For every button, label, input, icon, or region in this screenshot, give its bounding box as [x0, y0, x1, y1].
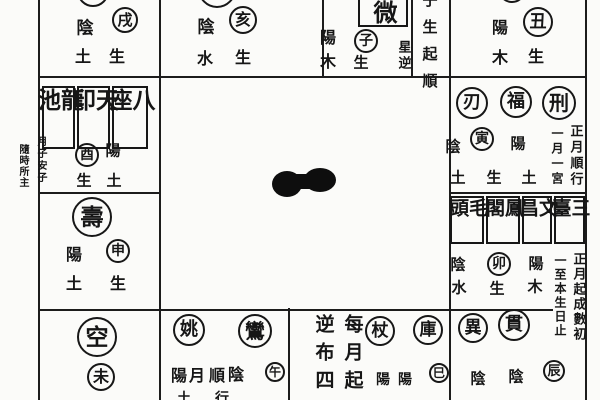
shou-star-circle: 壽 — [72, 197, 112, 237]
ink-blob — [269, 163, 337, 201]
yin-label: 陰 — [450, 258, 465, 273]
partial-cut-char: 土 — [177, 392, 191, 400]
branch-zi-circle: 子 — [354, 29, 378, 53]
element-water-label: 水 — [197, 51, 213, 67]
branch-yin-circle-char: 寅 — [475, 132, 489, 146]
branch-chen-circle: 辰 — [543, 360, 565, 382]
fu-star-circle: 福 — [500, 86, 532, 118]
grid-line — [411, 0, 413, 78]
partial-cut-char: 行 — [215, 392, 229, 400]
yi-star-circle-char: 異 — [465, 320, 482, 337]
branch-zi-circle-char: 子 — [359, 34, 373, 48]
maotou-star-box: 毛頭 — [450, 196, 484, 244]
grid-line — [38, 0, 40, 400]
guan-star-circle-char: 貫 — [505, 316, 523, 334]
cut-star-circle — [198, 0, 236, 8]
yao-star-circle: 姚 — [173, 314, 205, 346]
yang-label: 陽 — [171, 368, 187, 384]
grid-line — [449, 192, 587, 194]
divination-chart-page: 陰戌土生陰亥水生微陽子木生星逆子生起順陽丑木生龍池天印八座月子安子隨時所主酉陽生… — [0, 0, 600, 400]
kong-star-circle: 空 — [77, 317, 117, 357]
xing-star-circle-char: 刑 — [549, 93, 569, 113]
sheng-label: 生 — [76, 174, 91, 189]
ku-star-circle: 庫 — [413, 315, 443, 345]
branch-wei-circle: 未 — [87, 363, 115, 391]
luan-star-circle-char: 鸞 — [245, 321, 265, 341]
bazuo-star-box-text: 八座 — [107, 88, 153, 147]
note-zi-sheng-qi-shun: 子生起順 — [422, 0, 437, 100]
ku-star-circle-char: 庫 — [420, 322, 437, 339]
fengge-star-box: 鳳閣 — [486, 196, 520, 244]
yang-label: 陽 — [510, 137, 525, 152]
yin-label: 陰 — [77, 21, 94, 38]
kong-star-circle-char: 空 — [86, 326, 109, 349]
branch-mao-circle: 卯 — [487, 252, 511, 276]
yin-label: 陰 — [508, 370, 523, 385]
note-star-reverse: 星逆 — [397, 40, 410, 72]
note-first-month-forward: 正月順行 — [569, 124, 582, 188]
branch-hai-circle: 亥 — [229, 6, 257, 34]
yin-label: 陰 — [198, 20, 215, 37]
element-earth-label: 土 — [75, 49, 91, 65]
element-wood-label: 木 — [527, 280, 542, 295]
zhang-star-circle-char: 杖 — [372, 323, 389, 340]
yi-star-circle: 異 — [458, 313, 488, 343]
branch-you-circle: 酉 — [75, 143, 99, 167]
sheng-label: 生 — [353, 56, 368, 71]
branch-mao-circle-char: 卯 — [492, 257, 506, 271]
sheng-label: 生 — [110, 276, 126, 292]
fu-star-circle-char: 福 — [507, 93, 525, 111]
grid-line — [288, 308, 290, 400]
element-earth-label: 土 — [66, 276, 82, 292]
sheng-label: 生 — [489, 282, 504, 297]
grid-line — [159, 0, 161, 400]
maotou-star-box-text: 毛頭 — [448, 198, 486, 242]
branch-wei-circle-char: 未 — [93, 369, 109, 385]
santai-star-box: 三臺 — [554, 196, 585, 244]
grid-line — [38, 76, 587, 78]
branch-wu-circle: 午 — [265, 362, 285, 382]
branch-wu-circle-char: 午 — [269, 366, 281, 378]
yao-star-circle-char: 姚 — [180, 321, 198, 339]
yang-label: 陽 — [492, 20, 508, 36]
note-until-birthday: 一至本生日止 — [554, 254, 566, 338]
sheng-label: 生 — [528, 49, 544, 65]
ren-star-circle-char: 刃 — [463, 94, 481, 112]
yang-label: 陽 — [320, 30, 336, 46]
element-earth-label: 土 — [450, 171, 465, 186]
branch-shen-circle: 申 — [106, 239, 130, 263]
yin-label: 陰 — [228, 367, 244, 383]
branch-chen-circle-char: 辰 — [547, 365, 560, 378]
xing-star-circle: 刑 — [542, 86, 576, 120]
branch-xu-circle: 戌 — [112, 7, 138, 33]
shou-star-circle-char: 壽 — [81, 206, 104, 229]
branch-hai-circle-char: 亥 — [235, 12, 251, 28]
guan-star-circle: 貫 — [498, 309, 530, 341]
branch-chou-circle: 丑 — [523, 7, 553, 37]
element-earth-label: 土 — [106, 174, 121, 189]
grid-line — [38, 309, 553, 311]
branch-you-circle-char: 酉 — [80, 148, 94, 162]
element-wood-label: 木 — [492, 50, 508, 66]
yang-label: 陽 — [376, 373, 390, 387]
sheng-label: 生 — [109, 49, 125, 65]
shun-label: 順 — [209, 368, 225, 384]
branch-shen-circle-char: 申 — [111, 244, 125, 258]
cut-star-circle — [77, 0, 109, 7]
note-small-margin-right: 月子安子 — [35, 136, 45, 184]
element-water-label: 水 — [451, 281, 466, 296]
element-earth-label: 土 — [521, 171, 536, 186]
note-small-margin-left: 隨時所主 — [17, 144, 27, 188]
santai-star-box-text: 三臺 — [551, 198, 589, 242]
sheng-label: 生 — [235, 50, 251, 66]
note-one-month-one-palace: 一月一宮 — [551, 127, 563, 187]
yin-label: 陰 — [445, 140, 460, 155]
branch-si-circle-char: 巳 — [433, 367, 445, 379]
branch-si-circle: 巳 — [429, 363, 449, 383]
yang-label: 陽 — [105, 144, 120, 159]
note-every-month-start: 每月起 — [343, 314, 362, 398]
yang-label: 陽 — [398, 373, 412, 387]
yang-label: 陽 — [528, 257, 543, 272]
ziwei-star-box-text: 微 — [371, 0, 395, 24]
sheng-label: 生 — [486, 171, 501, 186]
branch-xu-circle-char: 戌 — [117, 13, 132, 28]
ren-star-circle: 刃 — [456, 87, 488, 119]
ziwei-star-box: 微 — [358, 0, 408, 27]
branch-chou-circle-char: 丑 — [530, 14, 547, 31]
branch-yin-circle: 寅 — [470, 127, 494, 151]
cut-star-circle — [498, 0, 526, 3]
grid-line — [38, 192, 161, 194]
month-label: 月 — [189, 368, 205, 384]
luan-star-circle: 鸞 — [238, 314, 272, 348]
yang-label: 陽 — [66, 247, 82, 263]
element-wood-label: 木 — [320, 54, 336, 70]
bazuo-star-box: 八座 — [112, 86, 148, 149]
wenchang-star-box: 文昌 — [522, 196, 552, 244]
zhang-star-circle: 杖 — [365, 316, 395, 346]
yin-label: 陰 — [470, 372, 485, 387]
note-first-month-count: 正月起成數初 — [572, 252, 585, 342]
note-reverse-spread-four: 逆布四 — [314, 314, 333, 398]
